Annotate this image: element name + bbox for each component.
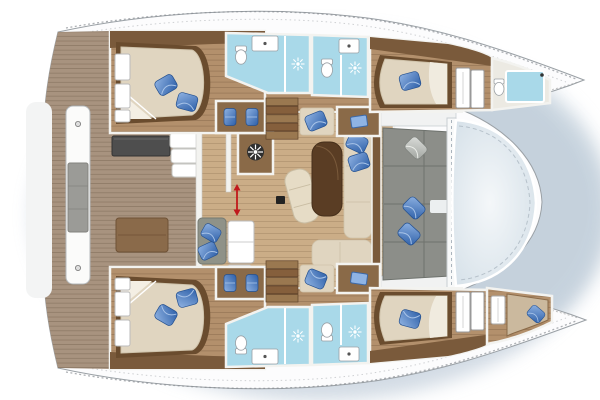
galley-island-edge	[226, 134, 231, 192]
floorplan-svg	[0, 0, 600, 400]
windlass-dot	[540, 73, 544, 77]
small-black-box	[276, 196, 285, 204]
companionway-stairs	[266, 98, 298, 139]
screw-dot-icon	[75, 265, 80, 270]
nightstand	[115, 110, 130, 122]
shower-rose-icon	[292, 58, 305, 71]
nightstand	[115, 84, 130, 108]
vanity-stool	[224, 109, 236, 126]
stern-bench-cushion	[68, 163, 88, 232]
blue-cushion-small	[350, 115, 367, 128]
nightstand	[115, 54, 130, 80]
toilet-icon	[322, 59, 333, 77]
sink-drain	[263, 42, 266, 45]
swim-platform	[26, 102, 52, 298]
wardrobe-door	[471, 70, 484, 108]
helm-wheel-icon	[247, 144, 264, 161]
screw-dot-icon	[75, 121, 80, 126]
toilet-icon	[494, 79, 504, 95]
bow-shower	[506, 71, 544, 102]
shower-rose-icon	[349, 62, 362, 75]
toilet-icon	[236, 46, 247, 64]
sink-drain	[347, 44, 350, 47]
crossbeam-top	[381, 112, 456, 126]
catamaran-floorplan	[0, 0, 600, 400]
vanity-stool	[246, 109, 258, 126]
